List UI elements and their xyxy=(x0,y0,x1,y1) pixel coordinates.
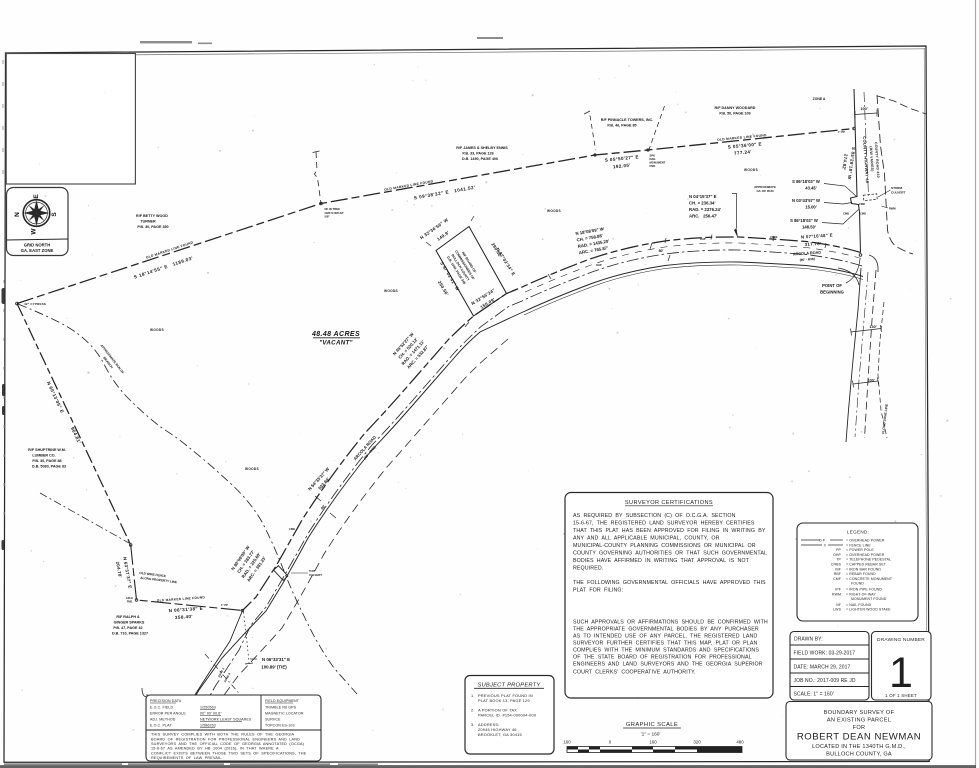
svg-text:S: S xyxy=(51,212,58,217)
svg-text:SURVEYORS AND THE OFFICIAL COD: SURVEYORS AND THE OFFICIAL CODE OF GEORG… xyxy=(151,742,305,746)
svg-text:AXLE: AXLE xyxy=(126,596,133,600)
svg-text:ZONE A: ZONE A xyxy=(813,97,826,101)
svg-text:1" = 160': 1" = 160' xyxy=(642,732,661,738)
svg-text:1: 1 xyxy=(889,649,913,697)
svg-text:00° 00' 00.6": 00° 00' 00.6" xyxy=(200,712,222,716)
svg-text:148.50': 148.50' xyxy=(802,225,816,230)
svg-text:SPK: SPK xyxy=(650,154,656,158)
svg-text:BULLOCH COUNTY, GA: BULLOCH COUNTY, GA xyxy=(826,752,892,758)
svg-text:N: N xyxy=(14,212,21,217)
svg-text:= LIGHTER WOOD STAKE: = LIGHTER WOOD STAKE xyxy=(846,608,891,612)
svg-text:DRAWING NUMBER: DRAWING NUMBER xyxy=(877,637,925,643)
svg-text:AN EXISTING PARCEL: AN EXISTING PARCEL xyxy=(827,718,891,724)
svg-text:CULVERT: CULVERT xyxy=(309,573,322,577)
svg-text:PRECISION DATA: PRECISION DATA xyxy=(150,699,182,703)
svg-text:CH. = 236.34': CH. = 236.34' xyxy=(689,201,715,206)
svg-text:LUMBER CO.: LUMBER CO. xyxy=(32,454,55,458)
svg-text:ERROR PER ANGLE: ERROR PER ANGLE xyxy=(150,712,186,716)
svg-text:OHP: OHP xyxy=(833,553,841,557)
svg-text:WOODS: WOODS xyxy=(547,209,561,213)
svg-text:ROBERT DEAN NEWMAN: ROBERT DEAN NEWMAN xyxy=(797,732,921,743)
svg-text:RWM: RWM xyxy=(832,592,841,596)
svg-text:= IRON PIPE FOUND: = IRON PIPE FOUND xyxy=(846,588,882,592)
svg-text:MONUMENT: MONUMENT xyxy=(650,161,666,165)
svg-text:15-6-67 AS AMENDED BY HB 1004: 15-6-67 AS AMENDED BY HB 1004 (2016), IN… xyxy=(151,747,279,751)
svg-text:CMB: CMB xyxy=(859,202,865,206)
svg-text:BOARD OF REGISTRATION FOR PROF: BOARD OF REGISTRATION FOR PROFESSIONAL E… xyxy=(151,737,300,741)
svg-text:E.O.C. FIELD: E.O.C. FIELD xyxy=(150,706,173,710)
svg-text:THIS SURVEY COMPLIES WITH BOTH: THIS SURVEY COMPLIES WITH BOTH THE RULES… xyxy=(151,733,295,737)
svg-text:2.: 2. xyxy=(471,708,475,713)
svg-text:= RIGHT-OF-WAY: = RIGHT-OF-WAY xyxy=(846,592,876,596)
svg-text:80': 80' xyxy=(659,249,664,253)
svg-text:15.00': 15.00' xyxy=(805,205,816,210)
svg-text:D.B. 5080, PAGE 83: D.B. 5080, PAGE 83 xyxy=(32,465,66,469)
svg-text:IBF: IBF xyxy=(835,567,841,571)
svg-text:TRIMBLE R6 GPS: TRIMBLE R6 GPS xyxy=(265,706,297,710)
svg-text:N 06°33'31" E: N 06°33'31" E xyxy=(262,657,290,662)
svg-text:R/F SHUPTRINE W.M.: R/F SHUPTRINE W.M. xyxy=(28,448,66,452)
svg-text:100': 100' xyxy=(867,379,874,383)
svg-text:FND.: FND. xyxy=(127,600,134,604)
svg-text:NF: NF xyxy=(836,603,841,607)
svg-text:160: 160 xyxy=(649,740,657,745)
svg-text:WOODS: WOODS xyxy=(384,289,398,293)
svg-text:E.O.C. PLAT: E.O.C. PLAT xyxy=(150,724,172,728)
svg-text:= CONCRETE MONUMENT: = CONCRETE MONUMENT xyxy=(846,577,893,581)
svg-text:= TELEPHONE PEDESTAL: = TELEPHONE PEDESTAL xyxy=(846,558,891,562)
svg-text:AS TO INTENDED USE OF ANY PARC: AS TO INTENDED USE OF ANY PARCEL. THE RE… xyxy=(573,634,757,640)
svg-text:GRAPHIC SCALE: GRAPHIC SCALE xyxy=(626,722,678,728)
svg-text:R/F BETTY WOOD: R/F BETTY WOOD xyxy=(136,214,168,218)
svg-text:FOUND: FOUND xyxy=(851,582,864,586)
svg-text:TURNER: TURNER xyxy=(140,220,156,224)
svg-text:FOR: FOR xyxy=(853,725,866,731)
svg-text:REQUIRED.: REQUIRED. xyxy=(573,566,603,572)
svg-text:JOB NO.: 2017-009 RE JD: JOB NO.: 2017-009 RE JD xyxy=(794,678,856,684)
svg-text:BROOKLET, GA 30415: BROOKLET, GA 30415 xyxy=(478,732,522,737)
svg-text:WOODS: WOODS xyxy=(150,328,164,332)
svg-text:THAT THIS PLAT HAS BEEN APPROV: THAT THIS PLAT HAS BEEN APPROVED FOR FIL… xyxy=(573,528,766,534)
svg-text:ANY AND ALL APPLICABLE MUNICIP: ANY AND ALL APPLICABLE MUNICIPAL, COUNTY… xyxy=(573,536,720,542)
svg-text:PP: PP xyxy=(836,548,841,552)
svg-text:LEGEND:: LEGEND: xyxy=(847,530,869,535)
svg-text:42" CYPRESS: 42" CYPRESS xyxy=(24,302,46,306)
svg-text:320: 320 xyxy=(693,740,701,745)
svg-text:= NAIL FOUND: = NAIL FOUND xyxy=(846,603,872,607)
svg-text:C/L OF RUN: C/L OF RUN xyxy=(756,189,773,193)
svg-text:= REBAR FOUND: = REBAR FOUND xyxy=(846,572,876,576)
svg-text:100.89' (TIE): 100.89' (TIE) xyxy=(261,665,287,670)
svg-text:SURVCE: SURVCE xyxy=(265,718,281,722)
svg-text:R/F PINNACLE TOWERS, INC.: R/F PINNACLE TOWERS, INC. xyxy=(601,118,653,122)
svg-text:CMB: CMB xyxy=(289,527,295,531)
svg-text:FIELD WORK: 03-29-2017: FIELD WORK: 03-29-2017 xyxy=(794,651,856,657)
svg-text:RWM: RWM xyxy=(889,207,896,211)
svg-text:N 04°15'37" E: N 04°15'37" E xyxy=(689,194,717,199)
svg-text:1/250563: 1/250563 xyxy=(200,706,216,710)
svg-text:CMB: CMB xyxy=(860,212,866,216)
svg-text:AS REQUIRED BY SUBSECTION (C): AS REQUIRED BY SUBSECTION (C) OF O.C.G.A… xyxy=(573,513,736,519)
svg-text:CMB: CMB xyxy=(843,212,849,216)
svg-text:THE FOLLOWING GOVERNMENTAL OFF: THE FOLLOWING GOVERNMENTAL OFFICIALS HAV… xyxy=(573,580,766,586)
svg-text:CULVERT: CULVERT xyxy=(891,191,905,195)
svg-text:ARC. 256.47': ARC. 256.47' xyxy=(689,214,717,219)
svg-text:1 OF 1 SHEET: 1 OF 1 SHEET xyxy=(885,693,917,698)
svg-text:S 86°18'03" W: S 86°18'03" W xyxy=(792,179,820,184)
svg-text:R/F JAMES & SHELBY ENNIS: R/F JAMES & SHELBY ENNIS xyxy=(456,146,508,150)
svg-text:"VACANT": "VACANT" xyxy=(319,340,353,347)
svg-text:NAIL: NAIL xyxy=(650,157,657,161)
svg-text:D.B. 1490, PAGE 406: D.B. 1490, PAGE 406 xyxy=(462,157,498,161)
svg-text:130': 130' xyxy=(869,325,876,329)
svg-text:= CAPPED REBAR SET: = CAPPED REBAR SET xyxy=(846,563,887,567)
svg-text:1.: 1. xyxy=(471,693,475,698)
svg-text:1" PP: 1" PP xyxy=(221,603,228,607)
svg-text:SUCH APPROVALS OR AFFIRMATIONS: SUCH APPROVALS OR AFFIRMATIONS SHOULD BE… xyxy=(573,620,768,626)
svg-text:48.48 ACRES: 48.48 ACRES xyxy=(311,331,360,338)
svg-text:= FENCE LINE: = FENCE LINE xyxy=(846,543,871,547)
svg-text:PLAT BOOK 13, PAGE 129: PLAT BOOK 13, PAGE 129 xyxy=(478,698,530,703)
svg-text:NETWORK LEAST SQUARES: NETWORK LEAST SQUARES xyxy=(200,718,252,722)
svg-text:IPF: IPF xyxy=(835,588,841,592)
svg-text:E: E xyxy=(33,194,40,199)
svg-text:TOPCON ES-103: TOPCON ES-103 xyxy=(265,724,295,728)
svg-text:POINT OF: POINT OF xyxy=(822,283,842,288)
svg-text:W: W xyxy=(31,228,38,235)
svg-text:SUBJECT PROPERTY: SUBJECT PROPERTY xyxy=(477,683,541,689)
svg-text:P.B. 33, PAGE 128: P.B. 33, PAGE 128 xyxy=(462,152,493,156)
svg-text:BEGINNING: BEGINNING xyxy=(820,290,844,295)
svg-text:CONFLICT EXISTS BETWEEN THOSE: CONFLICT EXISTS BETWEEN THOSE TWO SETS O… xyxy=(151,751,307,755)
svg-text:OHP: OHP xyxy=(596,263,602,267)
svg-text:R/F RALPH &: R/F RALPH & xyxy=(116,615,140,619)
svg-text:FND.: FND. xyxy=(650,164,657,168)
svg-text:P.B. 47, PAGE 32: P.B. 47, PAGE 32 xyxy=(113,626,142,630)
svg-text:5/8": 5/8" xyxy=(325,214,331,218)
svg-text:PARCEL ID. #154-000004-000: PARCEL ID. #154-000004-000 xyxy=(478,713,537,718)
svg-text:DRAWN BY:: DRAWN BY: xyxy=(794,637,823,643)
svg-text:P.B. 50, PAGE 109: P.B. 50, PAGE 109 xyxy=(719,112,750,116)
svg-text:3.: 3. xyxy=(471,722,475,727)
svg-text:1/586263: 1/586263 xyxy=(200,724,216,728)
svg-text:P.B. 30, PAGE 88: P.B. 30, PAGE 88 xyxy=(32,459,61,463)
svg-text:COUNTY GOVERNING AUTHORITIES O: COUNTY GOVERNING AUTHORITIES OR THAT SUC… xyxy=(573,551,767,557)
svg-text:DATE: MARCH 29, 2017: DATE: MARCH 29, 2017 xyxy=(794,665,851,671)
svg-text:D.B. 710, PAGE 1327: D.B. 710, PAGE 1327 xyxy=(112,632,148,636)
svg-text:P.B. 46, PAGE 85: P.B. 46, PAGE 85 xyxy=(607,124,636,128)
svg-text:100': 100' xyxy=(860,107,867,111)
svg-text:= OVERHEAD POWER: = OVERHEAD POWER xyxy=(846,539,885,543)
svg-text:N 03°43'57" W: N 03°43'57" W xyxy=(792,198,820,203)
svg-text:R/F DANNY WOODARD: R/F DANNY WOODARD xyxy=(715,106,756,110)
svg-text:SURVEYOR CERTIFICATIONS: SURVEYOR CERTIFICATIONS xyxy=(625,500,713,506)
svg-text:160: 160 xyxy=(563,740,571,745)
svg-text:SCALE: 1" = 160': SCALE: 1" = 160' xyxy=(794,692,834,698)
svg-text:GRID NORTH: GRID NORTH xyxy=(24,243,51,248)
svg-text:= OVERHEAD POWER: = OVERHEAD POWER xyxy=(846,553,885,557)
svg-text:WOODS: WOODS xyxy=(744,168,758,172)
svg-text:OHP: OHP xyxy=(700,237,706,241)
svg-text:COMPLIES WITH THE MINIMUM STAN: COMPLIES WITH THE MINIMUM STANDARDS AND … xyxy=(573,648,759,654)
svg-text:LOCATED IN THE 1340TH G.M.D.,: LOCATED IN THE 1340TH G.M.D., xyxy=(812,744,906,750)
svg-text:LWS: LWS xyxy=(833,608,841,612)
svg-text:COURT CLERKS' COOPERATIVE AUTH: COURT CLERKS' COOPERATIVE AUTHORITY. xyxy=(573,670,696,676)
svg-text:= IRON BAR FOUND: = IRON BAR FOUND xyxy=(846,567,881,571)
svg-text:RBF: RBF xyxy=(834,572,841,576)
svg-text:O-P: O-P xyxy=(819,539,825,543)
svg-text:TP: TP xyxy=(836,558,841,562)
svg-text:BODIES HAVE AFFIRMED IN WRITIN: BODIES HAVE AFFIRMED IN WRITING THAT APP… xyxy=(573,558,750,564)
svg-text:STORM: STORM xyxy=(891,186,903,190)
svg-text:REQUIREMENTS OF LAW PREVAIL.: REQUIREMENTS OF LAW PREVAIL. xyxy=(151,756,223,760)
svg-text:MAGNETIC LOCATOR: MAGNETIC LOCATOR xyxy=(265,712,304,716)
svg-text:ADJ. METHOD: ADJ. METHOD xyxy=(150,718,176,722)
svg-text:43.45': 43.45' xyxy=(805,186,816,191)
svg-text:CRBS: CRBS xyxy=(770,235,778,239)
svg-text:S 86°18'03" W: S 86°18'03" W xyxy=(790,218,818,223)
svg-text:P.B. 30, PAGE 350: P.B. 30, PAGE 350 xyxy=(137,225,168,229)
svg-text:ENGINEERS AND LAND SURVEYORS A: ENGINEERS AND LAND SURVEYORS AND THE GEO… xyxy=(573,662,763,668)
svg-text:THE APPROPRIATE GOVERNMENTAL B: THE APPROPRIATE GOVERNMENTAL BODIES BY A… xyxy=(573,627,759,633)
svg-text:1" PP: 1" PP xyxy=(838,130,845,134)
svg-text:OF THE STATE BOARD OF REGISTRA: OF THE STATE BOARD OF REGISTRATION FOR P… xyxy=(573,655,752,661)
svg-text:GINGER SPARKS: GINGER SPARKS xyxy=(114,621,145,625)
svg-text:480: 480 xyxy=(736,740,744,745)
svg-text:FIELD EQUIPMENT: FIELD EQUIPMENT xyxy=(265,699,300,703)
svg-text:GA. EAST ZONE: GA. EAST ZONE xyxy=(21,248,54,253)
svg-text:MUNICIPAL-COUNTY PLANNING COMM: MUNICIPAL-COUNTY PLANNING COMMISSIONS OR… xyxy=(573,543,756,549)
svg-text:PLAT FOR FILING:: PLAT FOR FILING: xyxy=(573,588,623,594)
svg-text:RAD. = 2376.24': RAD. = 2376.24' xyxy=(689,207,721,212)
svg-text:BOUNDARY SURVEY OF: BOUNDARY SURVEY OF xyxy=(824,710,895,716)
svg-text:= POWER POLE: = POWER POLE xyxy=(846,548,874,552)
svg-text:15-6-67, THE REGISTERED LAND S: 15-6-67, THE REGISTERED LAND SURVEYOR HE… xyxy=(573,521,755,527)
svg-text:CRBS: CRBS xyxy=(831,563,842,567)
svg-text:MONUMENT FOUND: MONUMENT FOUND xyxy=(851,597,887,601)
svg-text:CMF: CMF xyxy=(833,577,841,581)
svg-text:WOODS: WOODS xyxy=(245,467,259,471)
svg-text:SURVEYOR FURTHER CERTIFIES THA: SURVEYOR FURTHER CERTIFIES THAT THIS MAP… xyxy=(573,641,757,647)
